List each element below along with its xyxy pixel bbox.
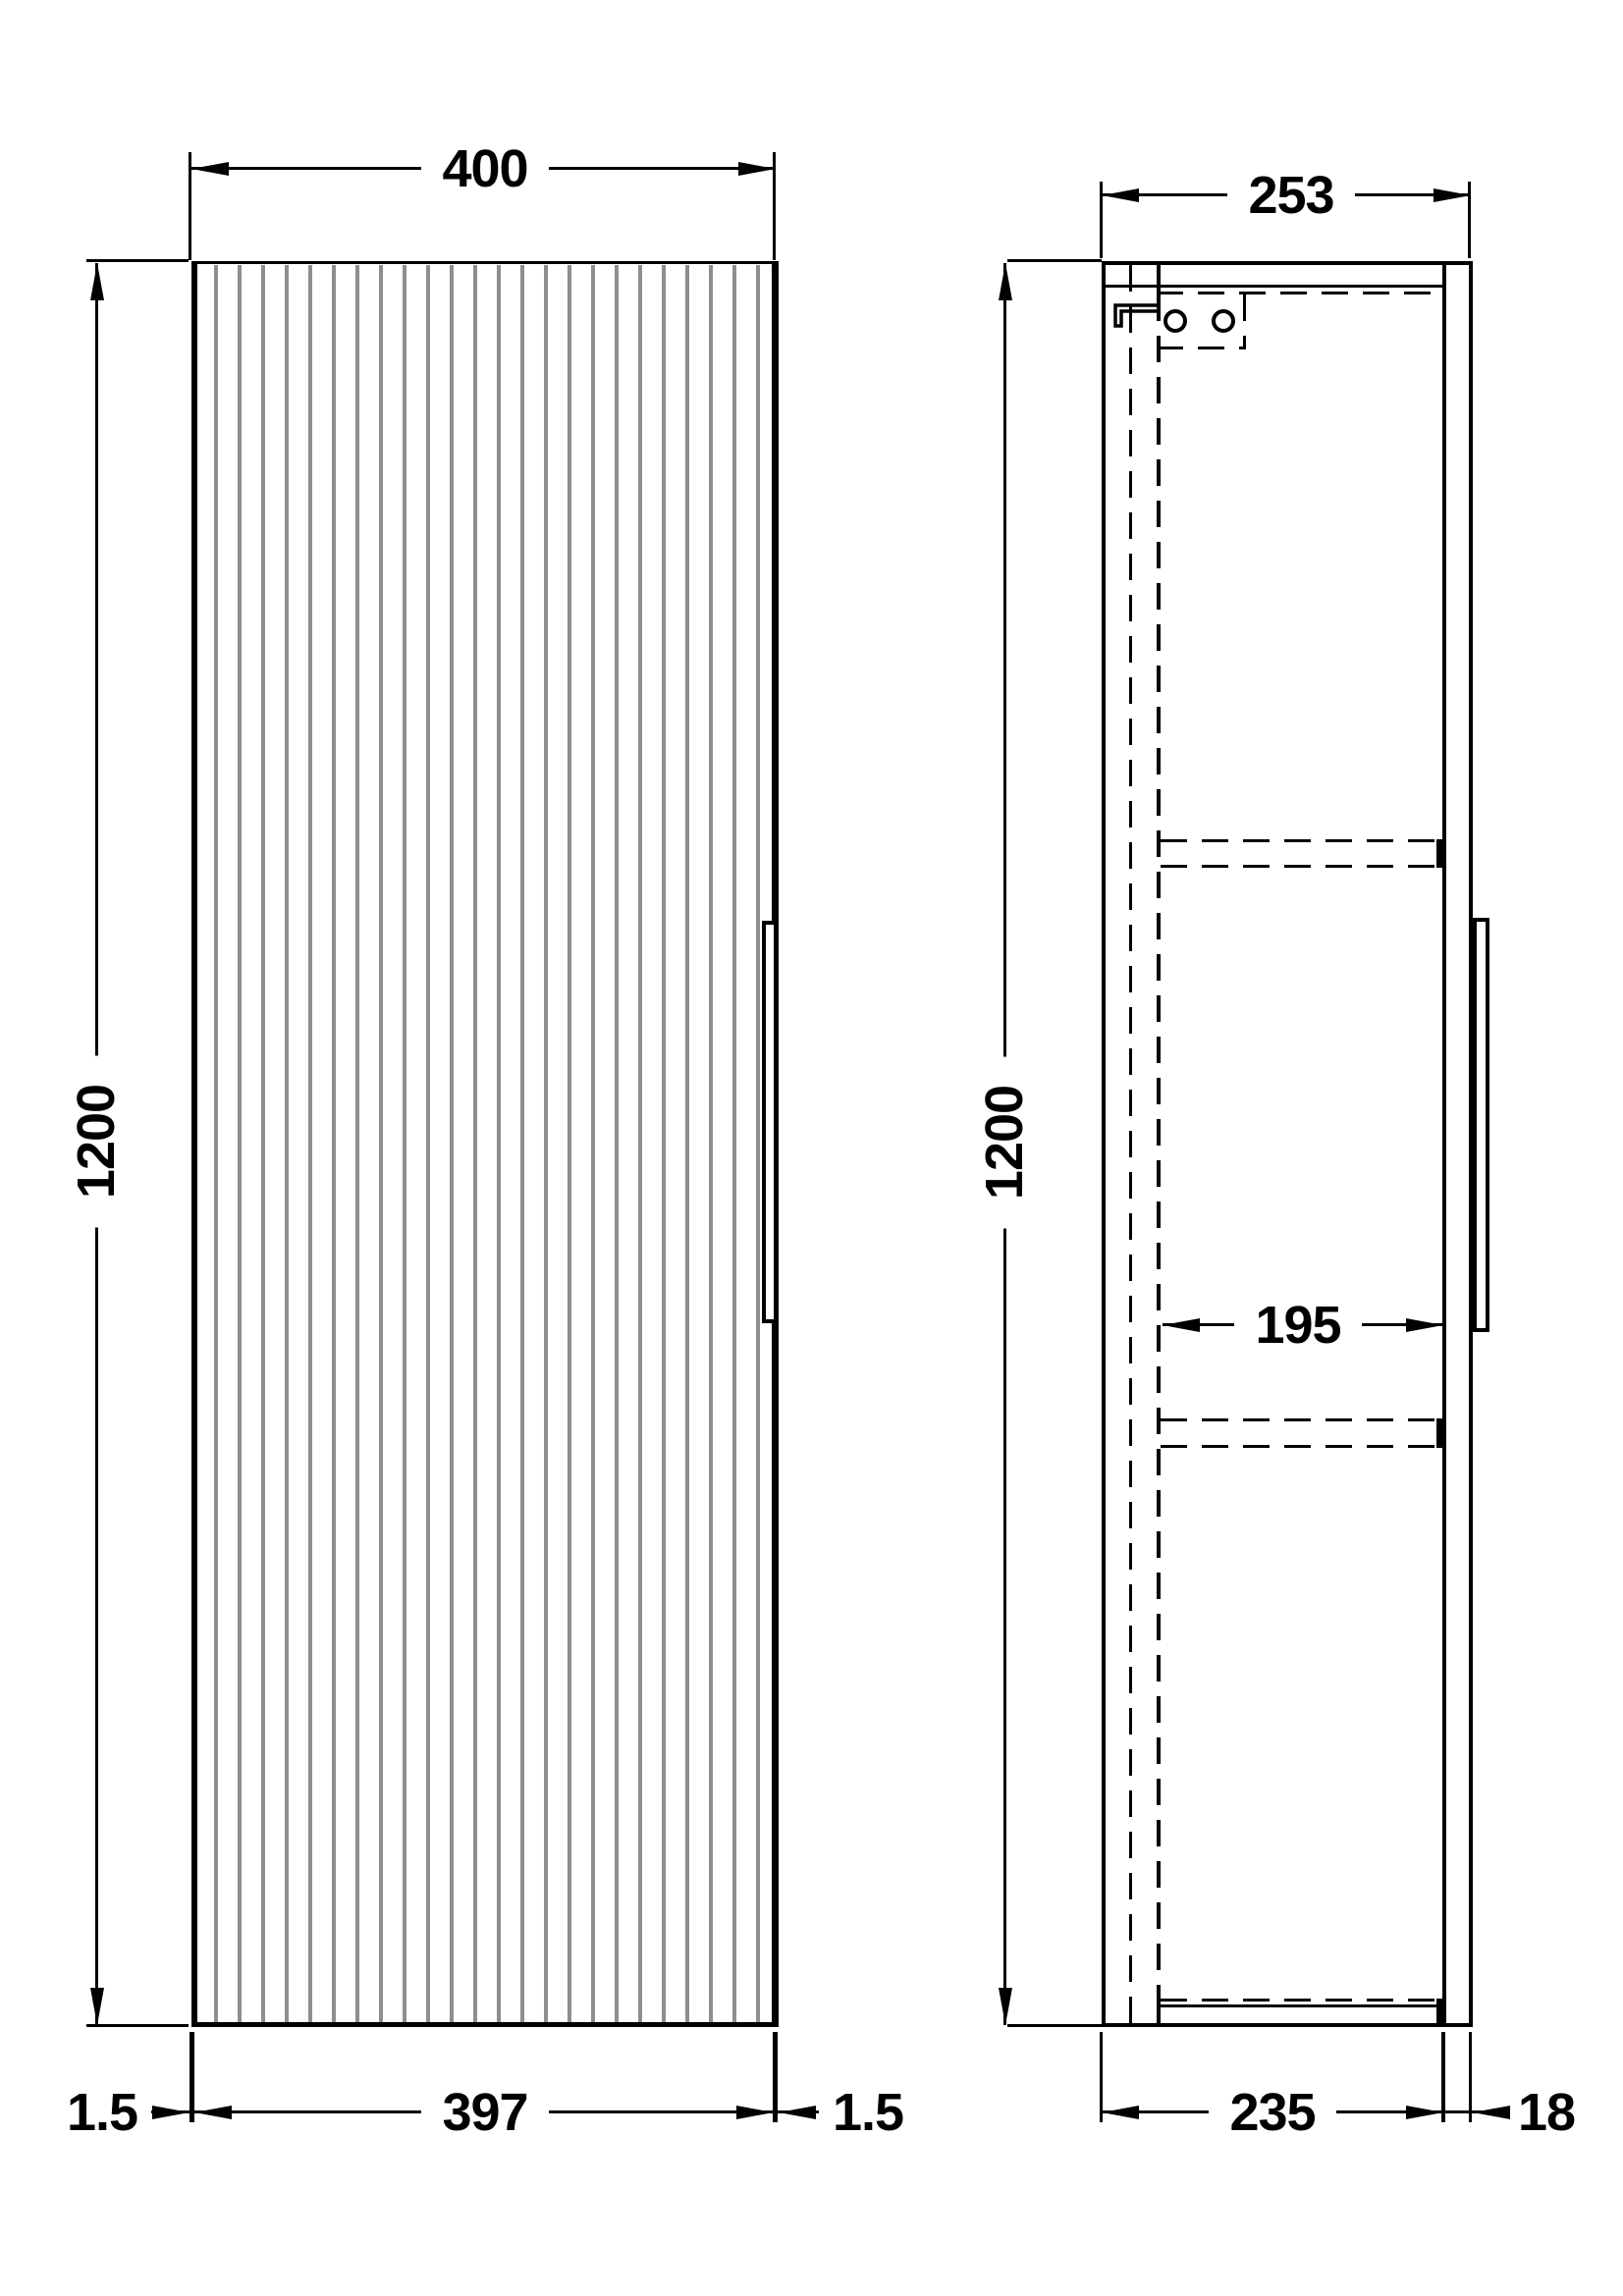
arrowhead-left <box>1163 1318 1200 1332</box>
arrowhead-right <box>738 162 776 176</box>
side-door-handle <box>1473 918 1489 1332</box>
dim-label-carcass-depth: 235 <box>1209 2085 1336 2140</box>
dim-label-front-height: 1200 <box>69 1056 124 1228</box>
bracket-screw-hole <box>1212 309 1235 333</box>
arrowhead-left <box>194 2106 232 2119</box>
wall-rail-hook-icon <box>1104 299 1161 331</box>
arrowhead-right <box>1406 1318 1443 1332</box>
ext-line <box>1007 259 1102 262</box>
dim-label-left-edge: 1.5 <box>53 2085 151 2140</box>
side-cabinet-outline <box>1102 261 1473 2027</box>
dim-label-front-width: 400 <box>421 141 549 196</box>
ext-line <box>1469 2032 1472 2122</box>
dim-label-internal-depth: 195 <box>1234 1298 1362 1353</box>
front-door-handle <box>762 921 778 1323</box>
arrowhead-right <box>1406 2106 1443 2119</box>
arrowhead-down <box>999 1988 1012 2025</box>
dim-label-side-depth: 253 <box>1227 168 1355 223</box>
arrowhead-right <box>736 2106 774 2119</box>
ext-line <box>86 259 189 262</box>
front-cabinet-outline <box>191 261 779 2027</box>
arrowhead-left <box>1102 188 1139 202</box>
arrowhead-left <box>1473 2106 1510 2119</box>
arrowhead-left <box>1102 2106 1139 2119</box>
arrowhead-right <box>152 2106 189 2119</box>
ext-line <box>1007 2024 1102 2027</box>
arrowhead-up <box>999 263 1012 300</box>
dim-label-door-thickness: 18 <box>1507 2085 1586 2140</box>
bracket-screw-hole <box>1163 309 1187 333</box>
dim-label-carcass-width: 397 <box>421 2085 549 2140</box>
arrowhead-up <box>90 263 104 300</box>
dim-label-side-height: 1200 <box>977 1057 1032 1229</box>
arrowhead-right <box>1434 188 1471 202</box>
shelf-end-section <box>1436 1418 1444 1448</box>
arrowhead-left <box>191 162 229 176</box>
shelf-end-section <box>1436 839 1444 868</box>
bottom-panel-end-section <box>1436 1999 1444 2024</box>
arrowhead-left <box>779 2106 816 2119</box>
dim-label-right-edge: 1.5 <box>819 2085 917 2140</box>
arrowhead-down <box>90 1988 104 2025</box>
technical-drawing-canvas: 400 1200 1.5 397 1.5 <box>0 0 1623 2296</box>
